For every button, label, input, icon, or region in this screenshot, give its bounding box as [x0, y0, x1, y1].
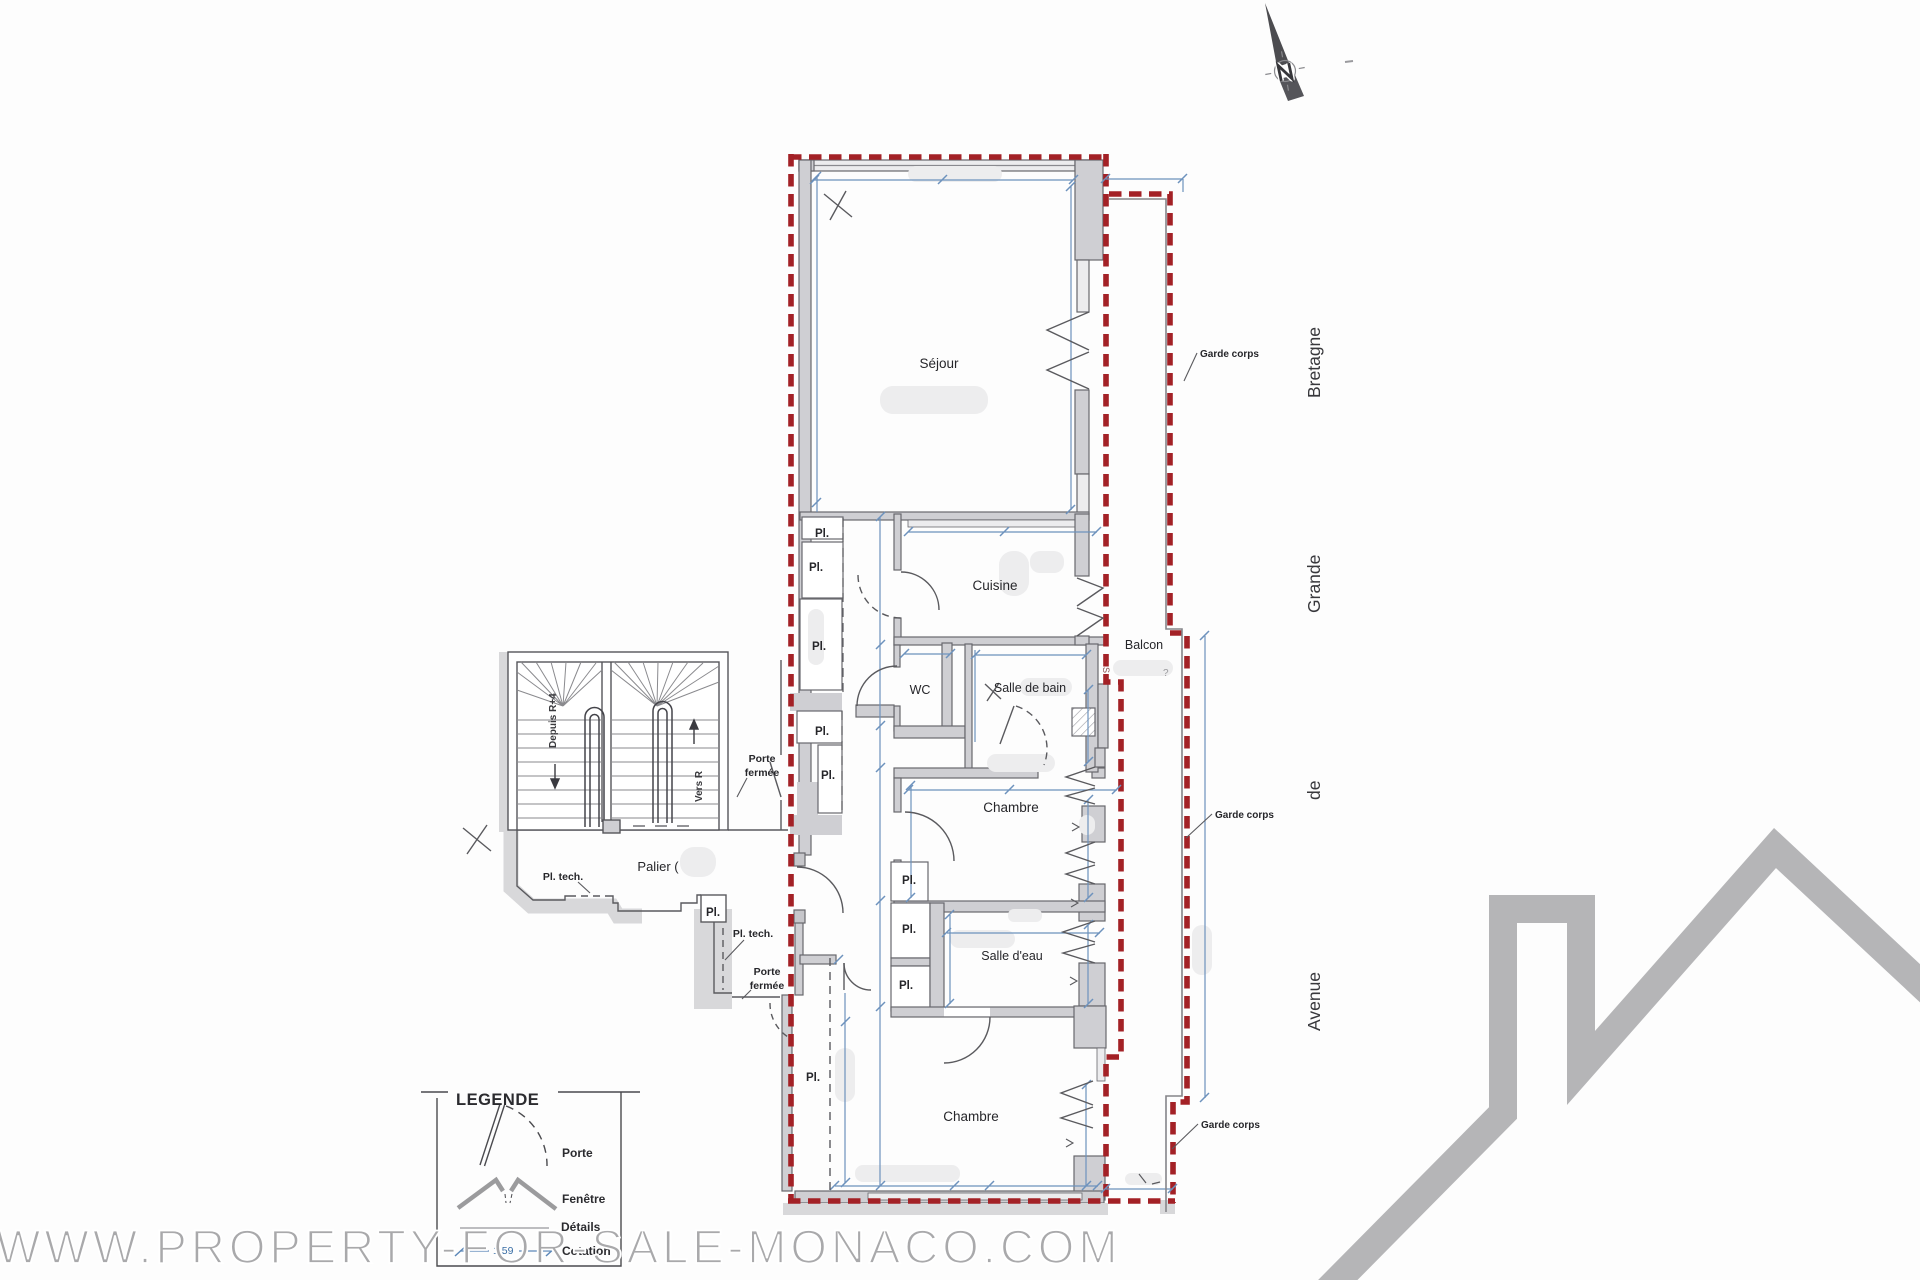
svg-text:Pl. tech.: Pl. tech. [733, 928, 773, 940]
svg-text:Pl.: Pl. [815, 726, 829, 738]
svg-text:Fenêtre: Fenêtre [562, 1192, 606, 1206]
svg-text:Salle de bain: Salle de bain [994, 681, 1066, 695]
svg-text:?: ? [1163, 668, 1169, 679]
svg-text:S: S [1101, 667, 1111, 673]
svg-text:WWW.PROPERTY-FOR-SALE-MONACO.C: WWW.PROPERTY-FOR-SALE-MONACO.COM [0, 1220, 1122, 1273]
svg-text:Bretagne: Bretagne [1304, 327, 1324, 398]
svg-text:Pl.: Pl. [902, 875, 916, 887]
svg-text:Porte: Porte [562, 1146, 593, 1160]
svg-text:Balcon: Balcon [1125, 638, 1163, 652]
svg-text:Pl.: Pl. [902, 924, 916, 936]
svg-text:Salle d'eau: Salle d'eau [981, 949, 1043, 963]
svg-text:Chambre: Chambre [943, 1109, 999, 1124]
svg-text:Garde corps: Garde corps [1201, 1120, 1260, 1131]
svg-text:Pl.: Pl. [706, 907, 720, 919]
svg-text:Séjour: Séjour [919, 356, 959, 371]
svg-text:Pl.: Pl. [821, 770, 835, 782]
svg-text:Grande: Grande [1304, 555, 1324, 613]
svg-text:Porte: Porte [754, 966, 781, 978]
svg-text:de: de [1304, 781, 1324, 800]
svg-text:Pl.: Pl. [812, 641, 826, 653]
svg-text:LEGENDE: LEGENDE [456, 1091, 539, 1109]
svg-text:Porte: Porte [749, 753, 776, 765]
svg-text:Garde corps: Garde corps [1215, 810, 1274, 821]
svg-text:Pl.: Pl. [809, 562, 823, 574]
svg-text:Garde corps: Garde corps [1200, 349, 1259, 360]
svg-text:Pl.: Pl. [806, 1072, 820, 1084]
svg-text:Avenue: Avenue [1304, 972, 1324, 1031]
svg-text:Vers R: Vers R [694, 770, 705, 802]
svg-text:Depuis R+4: Depuis R+4 [548, 693, 559, 748]
svg-text:Chambre: Chambre [983, 800, 1039, 815]
svg-text:Pl.: Pl. [815, 528, 829, 540]
svg-text:Palier (: Palier ( [637, 859, 679, 874]
svg-text:Pl. tech.: Pl. tech. [543, 871, 583, 883]
svg-text:Pl.: Pl. [899, 980, 913, 992]
svg-text:Cuisine: Cuisine [972, 578, 1017, 593]
svg-text:fermée: fermée [745, 767, 780, 779]
svg-text:WC: WC [910, 683, 931, 697]
svg-text:fermée: fermée [750, 980, 785, 992]
